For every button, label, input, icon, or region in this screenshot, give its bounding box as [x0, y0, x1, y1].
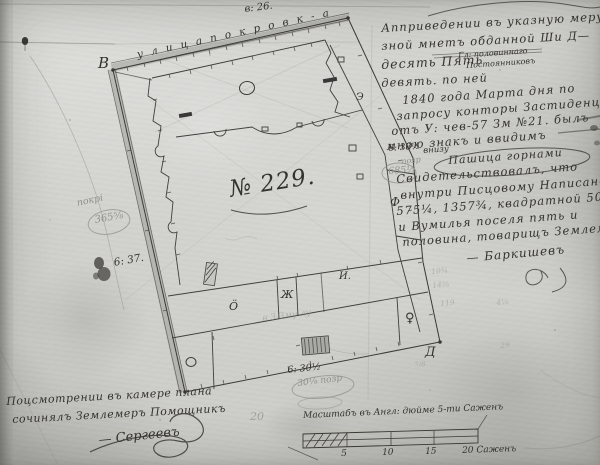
- corner-letter-d: Д: [425, 346, 436, 359]
- pencil-arithmetic-item: 29: [500, 341, 510, 349]
- scale-tick: 20 Саженъ: [462, 445, 516, 456]
- symbol-oe: Ӧ: [229, 299, 238, 313]
- building-bar: [323, 77, 337, 83]
- symbol-e: Э: [356, 92, 364, 103]
- scale-tick: 10: [382, 449, 394, 458]
- symbol-zh: Ж: [280, 288, 294, 301]
- scanned-plan-page: Э Ф Ж И. Ӧ ♀: [0, 0, 600, 465]
- scale-tick: 15: [425, 448, 437, 457]
- building-left: [204, 260, 218, 285]
- pencil-arithmetic-item: 119: [440, 299, 455, 308]
- paper-left-edge-shadow: [0, 0, 11, 465]
- pencil-arithmetic-item: 4⅛: [496, 298, 509, 307]
- circle-symbol: [186, 358, 196, 367]
- pencil-arithmetic-item: 14⅝: [432, 281, 449, 290]
- symbol-venus: ♀: [405, 311, 415, 326]
- street-bands: [108, 13, 349, 393]
- corner-letter-v: В: [98, 56, 109, 71]
- parcel-number-underline: [231, 206, 307, 214]
- pencil-ovals: [86, 163, 416, 410]
- pencil-page-number: 20: [250, 411, 264, 422]
- scale-tick: 5: [341, 450, 347, 459]
- pencil-arithmetic-item: 10¾: [431, 267, 448, 276]
- building-bottom: [301, 336, 329, 355]
- right-signature-flourish: [526, 268, 566, 292]
- symbol-i: И.: [338, 271, 351, 282]
- pencil-arithmetic-item: 7/8: [414, 361, 426, 369]
- plan-letter-symbols: Э Ф Ж И. Ӧ ♀: [229, 92, 415, 326]
- buildings: [179, 77, 337, 355]
- building-bar: [179, 112, 192, 118]
